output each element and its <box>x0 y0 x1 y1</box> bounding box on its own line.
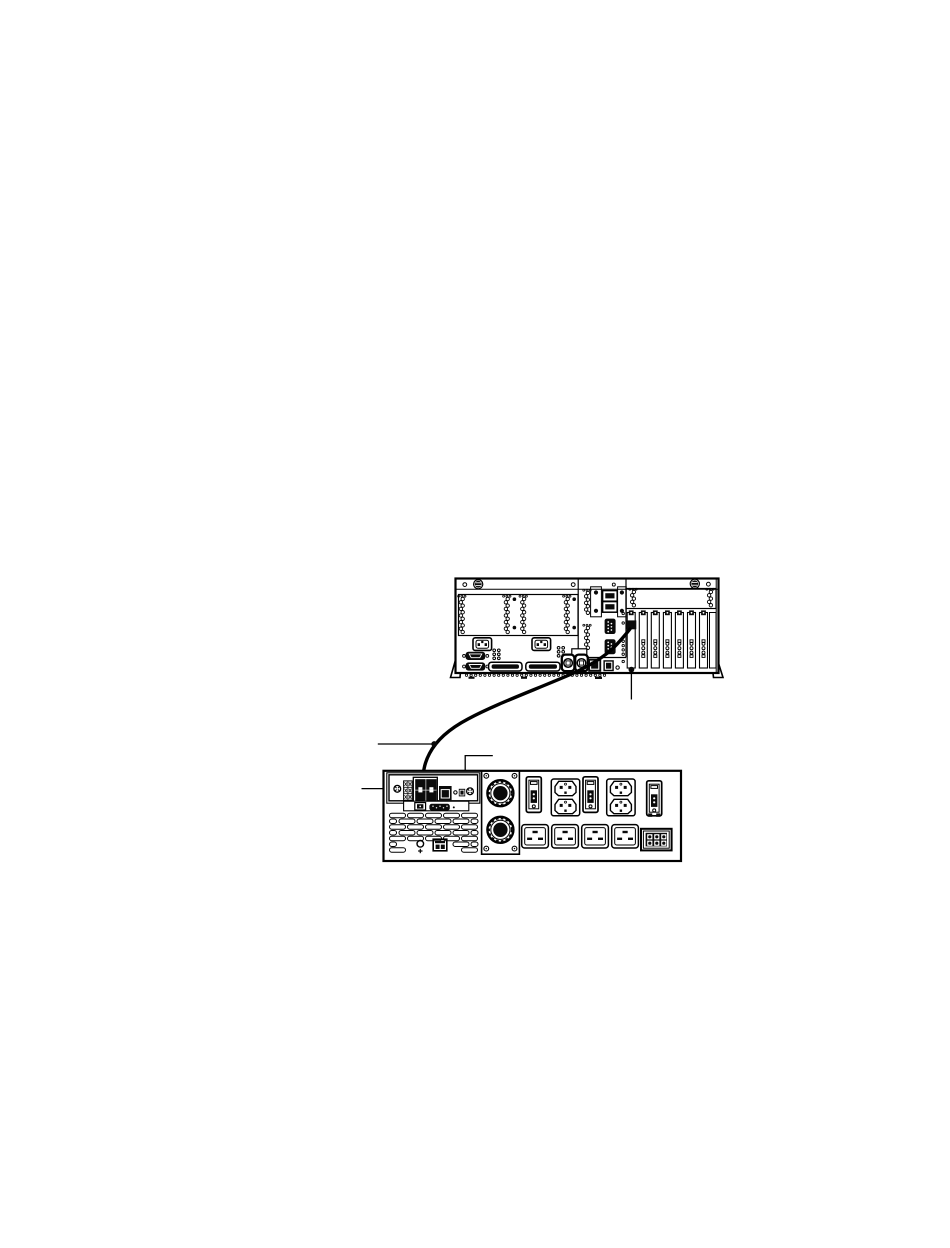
vent-hole <box>576 674 578 676</box>
pci-slot <box>651 613 659 669</box>
hex-screw-right <box>690 579 699 588</box>
rj45-single-port <box>439 786 452 800</box>
scsi-connector-1 <box>489 662 522 671</box>
rj45-jack <box>415 790 425 801</box>
cabling-diagram-canvas <box>0 0 950 1248</box>
vent-hole <box>557 674 559 676</box>
vent-hole <box>516 674 518 676</box>
service-db9-port <box>429 804 449 811</box>
adapter-port-callout <box>629 667 635 700</box>
vent-hole <box>585 674 587 676</box>
vent-hole <box>507 674 509 676</box>
hex-screw-left <box>474 580 483 589</box>
c19-outlet <box>552 825 579 848</box>
vent-hole <box>580 674 582 676</box>
vent-hole <box>470 674 472 676</box>
ethernet-port-2 <box>603 660 613 671</box>
vent-hole <box>534 674 536 676</box>
adapter-port <box>627 620 637 629</box>
vent-hole <box>484 674 486 676</box>
rj45-jack <box>415 779 425 790</box>
rj45-jack <box>426 779 436 790</box>
rj45-jack <box>426 790 436 801</box>
bay-rj45-stack <box>603 591 618 613</box>
vent-hole <box>530 674 532 676</box>
mini-connector <box>459 789 465 797</box>
vent-hole <box>594 674 596 676</box>
c19-outlet <box>522 825 549 848</box>
bottom-vent-hole-row <box>465 674 605 676</box>
vent-hole <box>488 674 490 676</box>
bottom-dash-3 <box>595 677 602 679</box>
vent-hole <box>502 674 504 676</box>
circuit-breaker <box>583 777 598 813</box>
panel-screw-left <box>394 785 401 792</box>
vent-hole <box>544 674 546 676</box>
service-dot <box>453 806 455 808</box>
pci-slot <box>675 613 683 669</box>
ac-power-inlet <box>532 638 551 651</box>
power-subsystem-rear-panel <box>384 771 682 861</box>
vent-hole <box>479 674 481 676</box>
pci-slot <box>700 613 708 669</box>
bay-db9-port-upper <box>605 619 616 634</box>
vent-hole <box>539 674 541 676</box>
pci-slot <box>639 613 647 669</box>
ac-power-inlet <box>473 638 492 651</box>
server-rear-panel <box>451 579 724 680</box>
pci-slots <box>627 613 707 669</box>
rj45-quad-block <box>413 777 437 801</box>
vent-hole <box>553 674 555 676</box>
vent-hole <box>521 674 523 676</box>
pci-slot <box>688 613 696 669</box>
c13-outlet-pair <box>551 779 579 816</box>
cable-callout <box>378 741 437 747</box>
document-page <box>0 0 950 1248</box>
scsi-connector-2 <box>526 662 560 671</box>
vent-hole <box>590 674 592 676</box>
panel-screw-right <box>467 788 474 795</box>
bottom-dash-2 <box>521 677 527 679</box>
circuit-breaker <box>647 781 662 817</box>
c19-outlet <box>582 825 609 848</box>
circuit-breaker <box>526 777 541 813</box>
vent-hole <box>511 674 513 676</box>
vent-hole <box>475 674 477 676</box>
pdu-service-row <box>404 801 469 811</box>
pci-slot <box>663 613 671 669</box>
c19-outlet <box>612 825 639 848</box>
vent-hole <box>603 674 605 676</box>
vent-hole <box>465 674 467 676</box>
c13-outlet-pair <box>607 779 635 816</box>
bottom-dash-1 <box>469 677 475 679</box>
vent-hole <box>493 674 495 676</box>
vent-hole <box>599 674 601 676</box>
vent-hole <box>548 674 550 676</box>
vent-hole <box>525 674 527 676</box>
vent-hole <box>498 674 500 676</box>
